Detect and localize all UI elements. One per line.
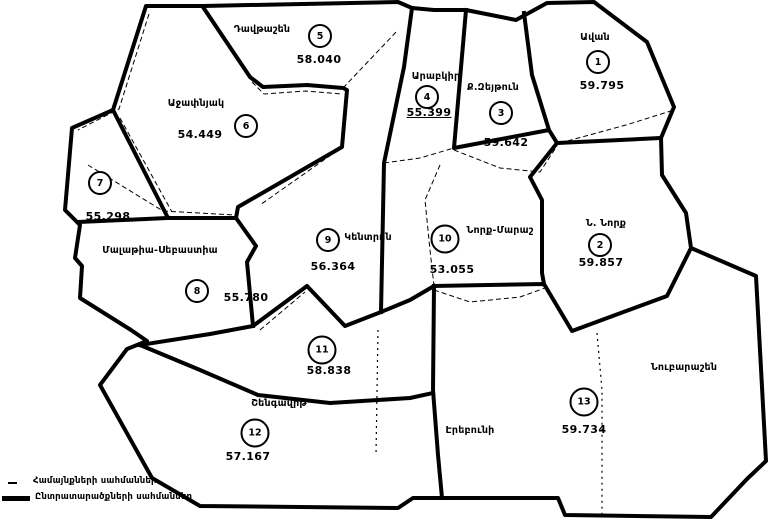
district-1-value: 59.795 [580, 79, 625, 92]
thick-line-swatch [2, 496, 30, 501]
area-label-erebuni: Էրեբունի [446, 425, 495, 436]
district-4-value: 55.399 [407, 106, 452, 119]
legend-label: Ընտրատարածքների սահմաններ [35, 492, 192, 502]
district-8-number-badge: 8 [185, 279, 209, 303]
district-1-label: Ավան [580, 32, 610, 43]
district-3-label: Ք.Զեյթուն [467, 82, 519, 93]
district-5-value: 58.040 [297, 53, 342, 66]
district-11-number-badge: 11 [308, 336, 337, 365]
district-2-number-badge: 2 [588, 233, 612, 257]
district-4-label: Արաբկիր [412, 71, 461, 82]
district-5-label: Դավթաշեն [234, 24, 291, 35]
district-2-label: Ն. Նորք [586, 218, 626, 229]
district-8-value: 55.780 [224, 291, 269, 304]
legend-label: Համայնքների սահմաններ [33, 476, 157, 486]
district-13-number-badge: 13 [570, 388, 599, 417]
district-3-number-badge: 3 [489, 101, 513, 125]
district-10-value: 53.055 [430, 263, 475, 276]
district-9-label: Կենտրոն [344, 232, 392, 243]
district-12-number-badge: 12 [241, 419, 270, 448]
district-10-label: Նորք-Մարաշ [466, 225, 533, 236]
district-6-number-badge: 6 [234, 114, 258, 138]
district-3-value: 59.642 [484, 136, 529, 149]
district-1-number-badge: 1 [586, 50, 610, 74]
district-6-value: 54.449 [178, 128, 223, 141]
district-8-label: Մալաթիա-Սեբաստիա [102, 245, 218, 256]
district-5-number-badge: 5 [308, 24, 332, 48]
yerevan-districts-map: Դավթաշեն Աջափնյակ Արաբկիր Ք.Զեյթուն Ավան… [0, 0, 768, 532]
district-13-value: 59.734 [562, 423, 607, 436]
district-7-number-badge: 7 [88, 171, 112, 195]
district-11-value: 58.838 [307, 364, 352, 377]
district-6-label: Աջափնյակ [168, 98, 225, 109]
district-11-label: Շենգավիթ [251, 398, 307, 409]
map-line-work [0, 0, 768, 532]
area-label-nubarashen: Նուբարաշեն [651, 362, 717, 373]
district-7-value: 55.298 [86, 210, 131, 223]
thin-line-swatch [8, 482, 17, 484]
district-9-number-badge: 9 [316, 228, 340, 252]
district-12-value: 57.167 [226, 450, 271, 463]
district-10-number-badge: 10 [431, 225, 460, 254]
district-2-value: 59.857 [579, 256, 624, 269]
district-9-value: 56.364 [311, 260, 356, 273]
